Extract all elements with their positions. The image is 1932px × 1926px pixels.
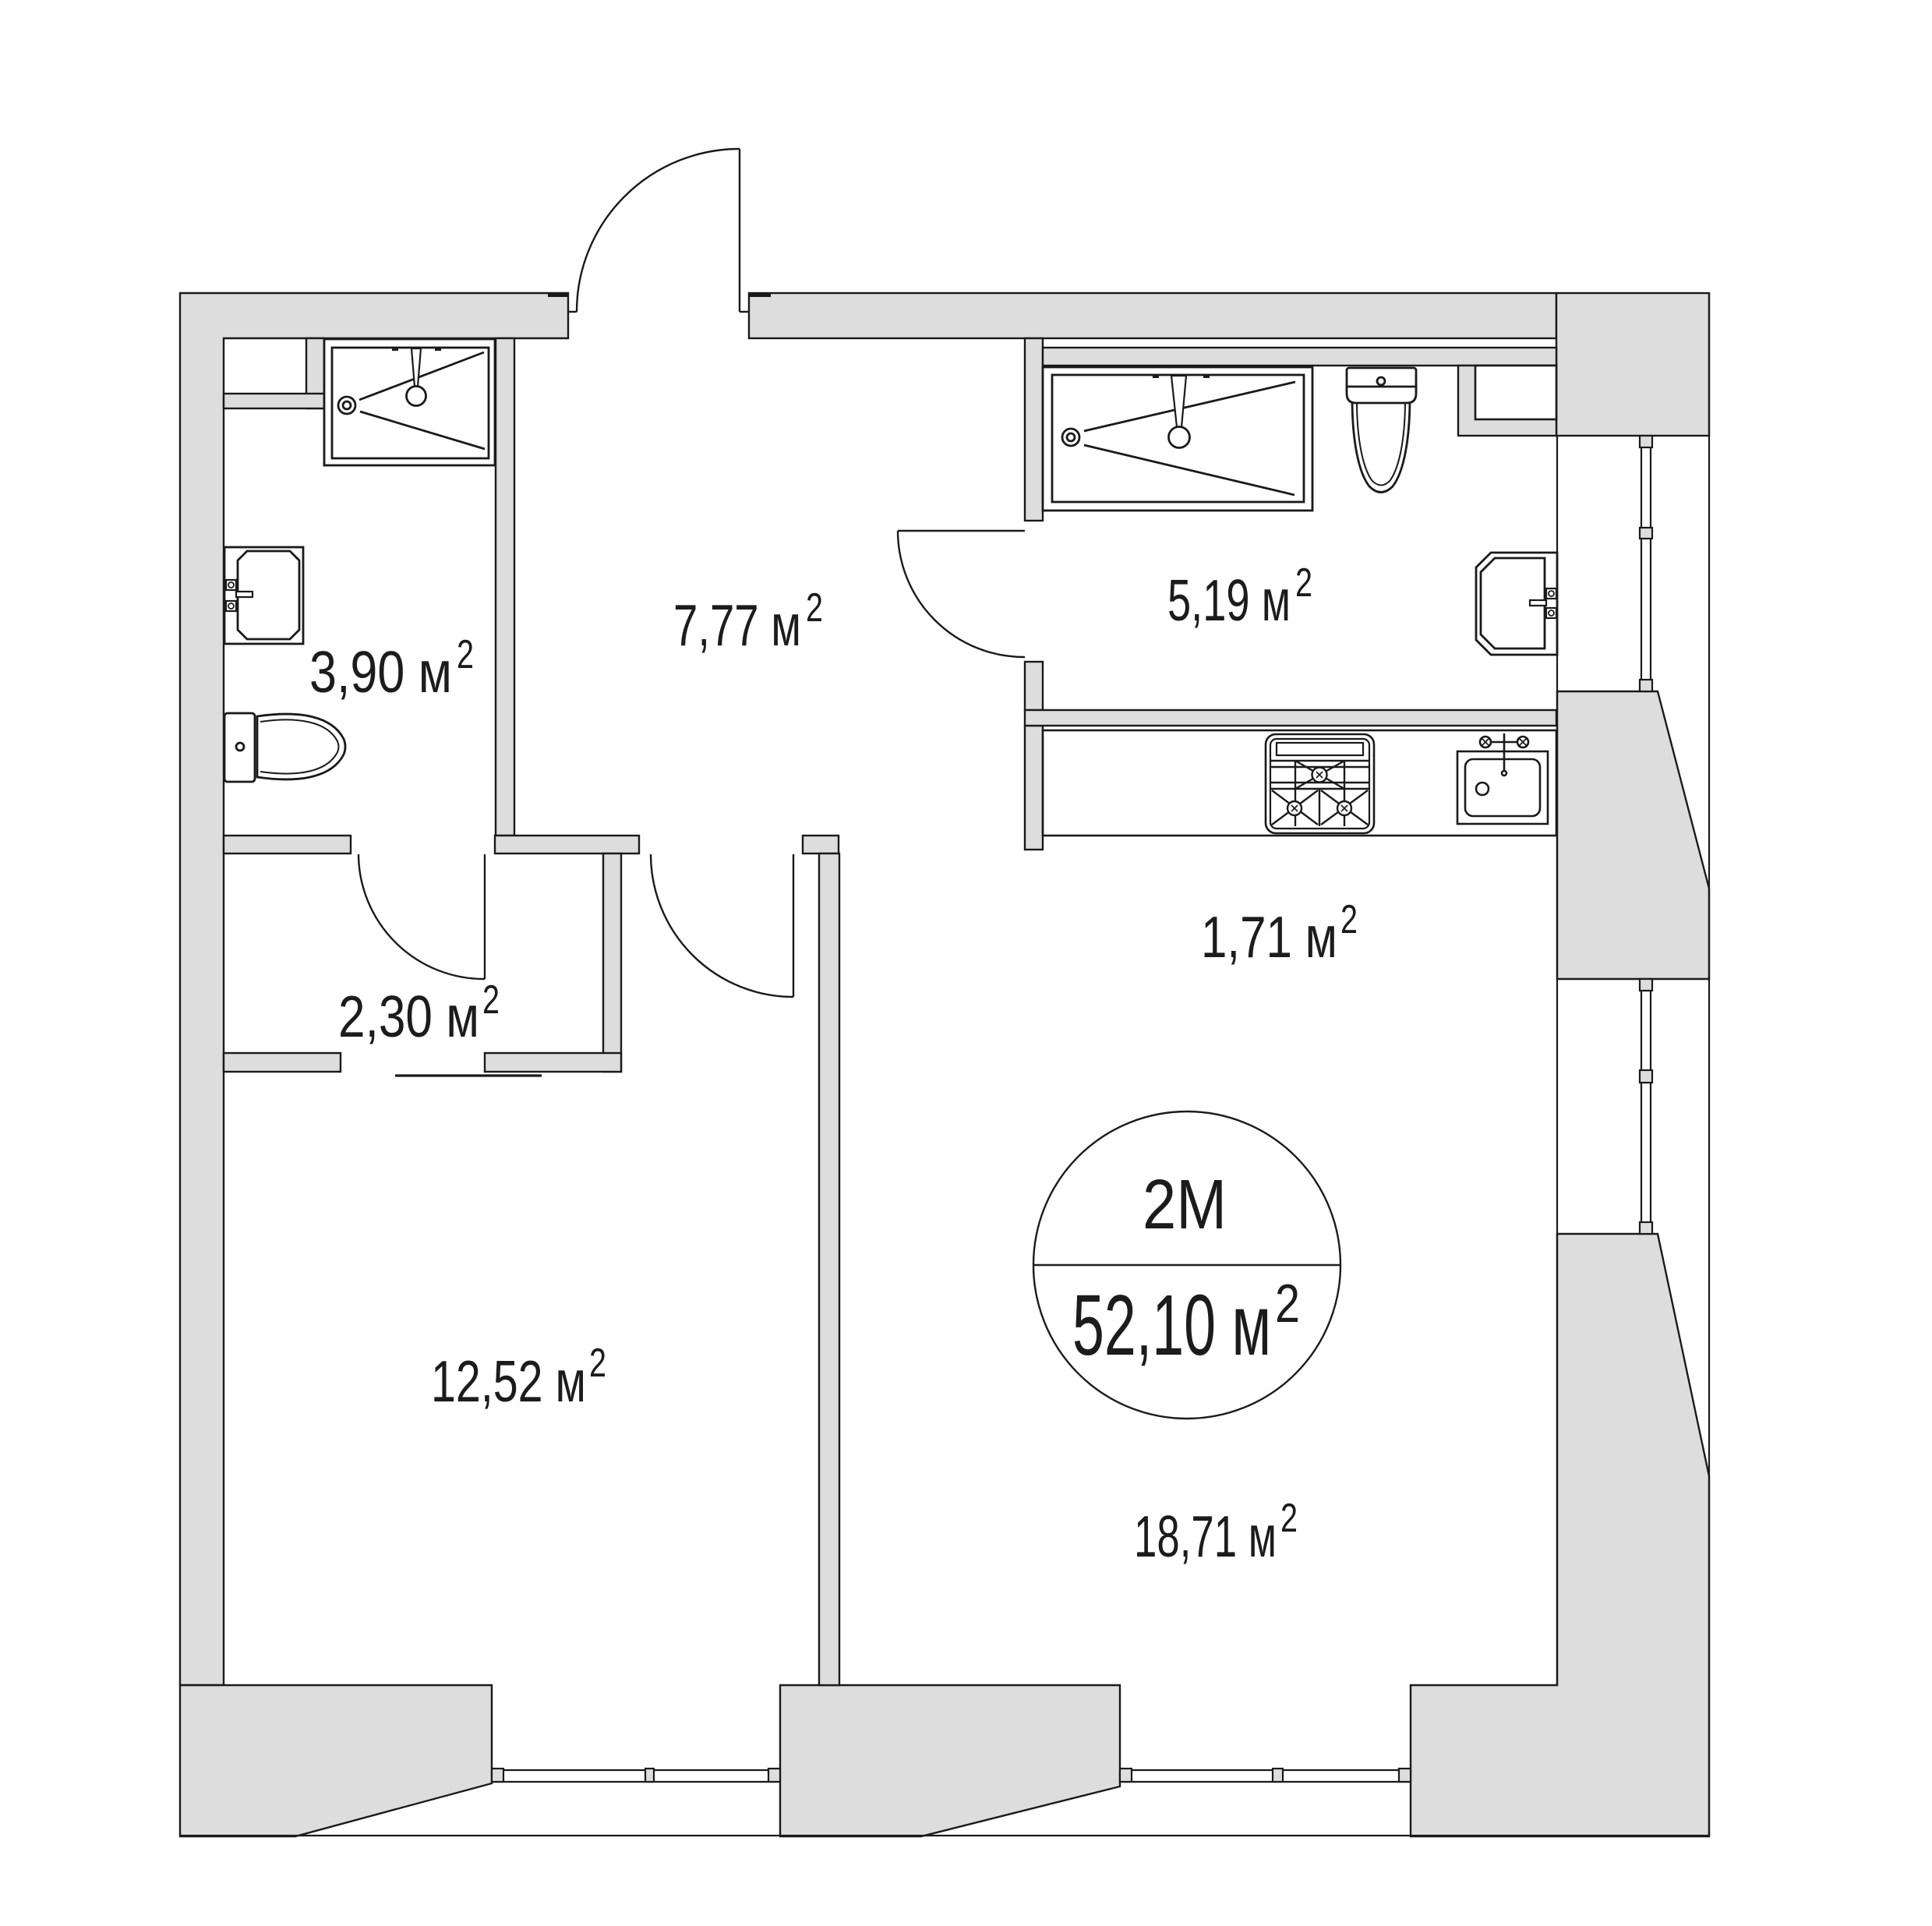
svg-text:2: 2 — [482, 977, 500, 1023]
svg-text:18,71 м: 18,71 м — [1134, 1504, 1277, 1569]
svg-text:2: 2 — [1275, 1273, 1300, 1334]
svg-text:7,77 м: 7,77 м — [673, 592, 801, 658]
svg-text:2: 2 — [1280, 1496, 1298, 1541]
svg-text:2,30 м: 2,30 м — [338, 984, 479, 1049]
svg-text:1,71 м: 1,71 м — [1201, 904, 1337, 970]
svg-text:2М: 2М — [1143, 1166, 1227, 1244]
svg-text:2: 2 — [589, 1341, 606, 1386]
svg-text:2: 2 — [457, 632, 474, 677]
svg-text:3,90 м: 3,90 м — [309, 639, 452, 705]
svg-text:2: 2 — [1340, 897, 1358, 942]
svg-text:5,19 м: 5,19 м — [1167, 567, 1291, 633]
svg-text:52,10 м: 52,10 м — [1072, 1278, 1271, 1373]
svg-text:2: 2 — [1295, 560, 1312, 606]
svg-text:12,52 м: 12,52 м — [431, 1348, 586, 1414]
svg-text:2: 2 — [806, 585, 823, 631]
